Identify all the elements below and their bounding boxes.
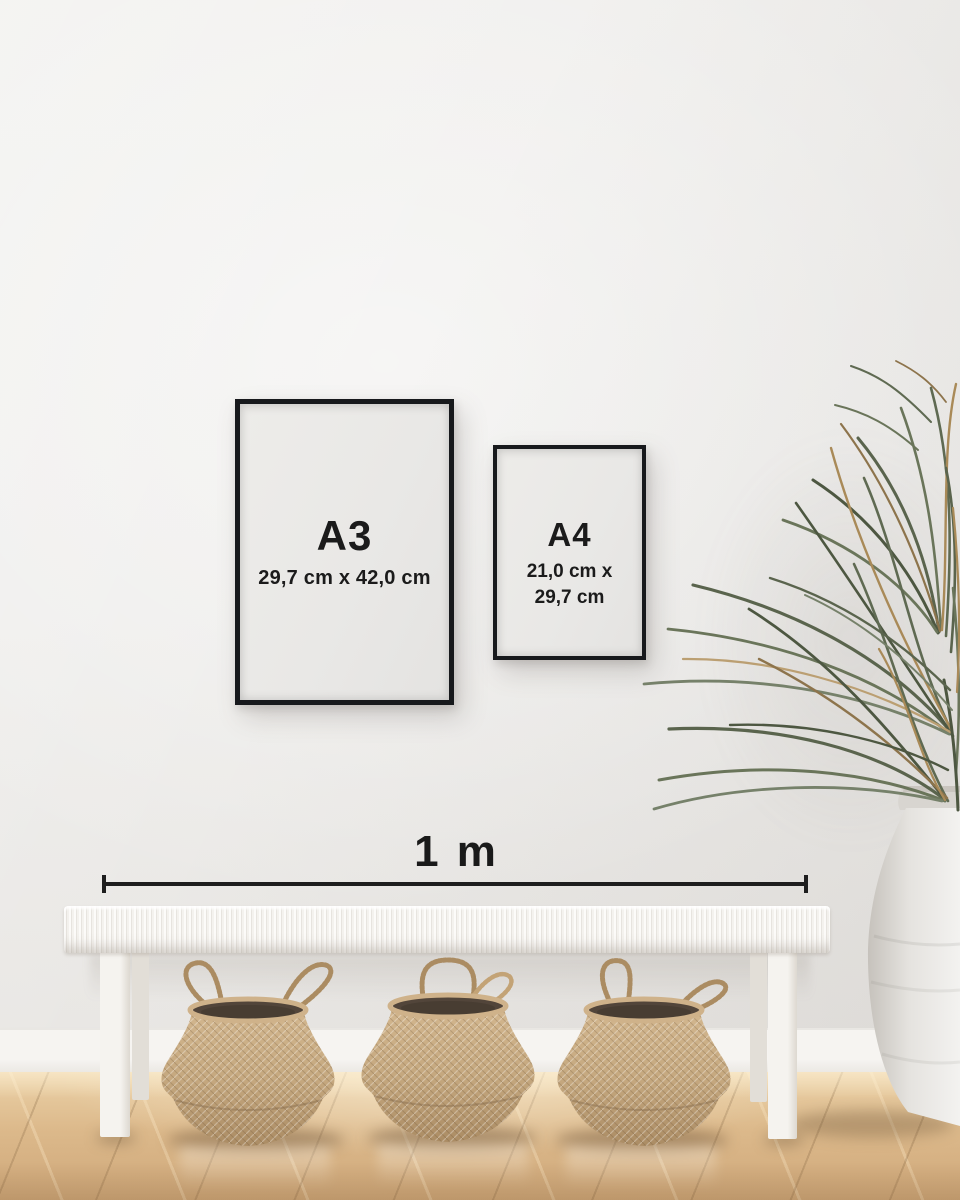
bench-seat [64,906,830,953]
scale-bar: 1 m [102,830,808,886]
a3-text-block: A3 29,7 cm x 42,0 cm [258,515,430,590]
bench-leg-right-rear [750,950,767,1102]
bench-leg-left-rear [132,950,149,1100]
a3-frame: A3 29,7 cm x 42,0 cm [235,399,454,705]
scale-line [102,882,808,886]
ceramic-vase [860,786,960,1134]
bench-leg-left-front [100,950,130,1137]
basket-left-reflection [180,1146,330,1188]
seagrass-basket-left [161,963,334,1146]
a3-paper: A3 29,7 cm x 42,0 cm [240,404,449,700]
basket-right-reflection [566,1146,716,1188]
scale-label: 1 m [102,830,808,874]
a3-size-label: A3 [258,515,430,557]
bench-leg-right-front [768,950,797,1139]
basket-middle-reflection [378,1144,528,1186]
room-scene: A3 29,7 cm x 42,0 cm A4 21,0 cm x 29,7 c… [0,0,960,1200]
seagrass-basket-right [557,961,730,1146]
palm-plant [600,330,960,830]
a3-dimensions: 29,7 cm x 42,0 cm [258,567,430,590]
seagrass-baskets [150,952,740,1148]
seagrass-basket-middle [361,960,534,1142]
